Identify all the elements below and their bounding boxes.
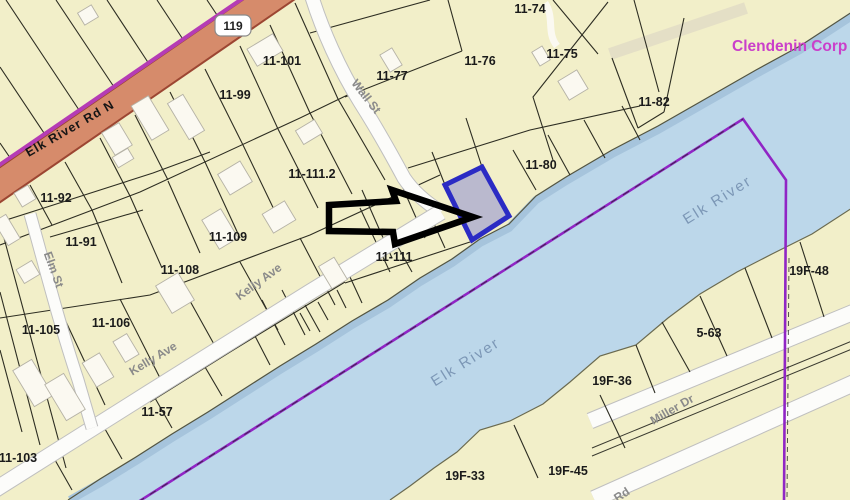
parcel-label: 11-76: [464, 54, 495, 68]
parcel-label: 11-106: [92, 316, 130, 330]
parcel-label: 11-80: [525, 158, 556, 172]
parcel-label: 11-111.2: [288, 167, 335, 181]
parcel-map: 11-74 11-75 11-76 11-77 11-80 11-82 11-1…: [0, 0, 850, 500]
parcel-label: 11-111: [376, 250, 413, 264]
parcel-label: 11-109: [209, 230, 247, 244]
parcel-label: 11-99: [219, 88, 250, 102]
parcel-label: 19F-45: [548, 464, 588, 478]
parcel-label: 11-103: [0, 451, 37, 465]
parcel-label: 11-57: [141, 405, 172, 419]
parcel-label: 11-92: [40, 191, 71, 205]
parcel-label: 11-105: [22, 323, 60, 337]
parcel-label: 11-108: [161, 263, 199, 277]
parcel-label: 11-101: [263, 54, 301, 68]
route-shield-number: 119: [223, 19, 243, 33]
parcel-label: 11-77: [376, 69, 407, 83]
parcel-label: 11-82: [638, 95, 669, 109]
parcel-label: 19F-33: [445, 469, 485, 483]
parcel-label: 19F-48: [789, 264, 829, 278]
owner-label: Clendenin Corp: [732, 38, 847, 55]
parcel-map-viewport: 11-74 11-75 11-76 11-77 11-80 11-82 11-1…: [0, 0, 850, 500]
parcel-label: 11-91: [65, 235, 96, 249]
parcel-label: 11-75: [546, 47, 577, 61]
parcel-label: 5-63: [696, 326, 721, 340]
parcel-label: 11-74: [514, 2, 545, 16]
route-shield-119: 119: [215, 15, 251, 36]
parcel-label: 19F-36: [592, 374, 632, 388]
